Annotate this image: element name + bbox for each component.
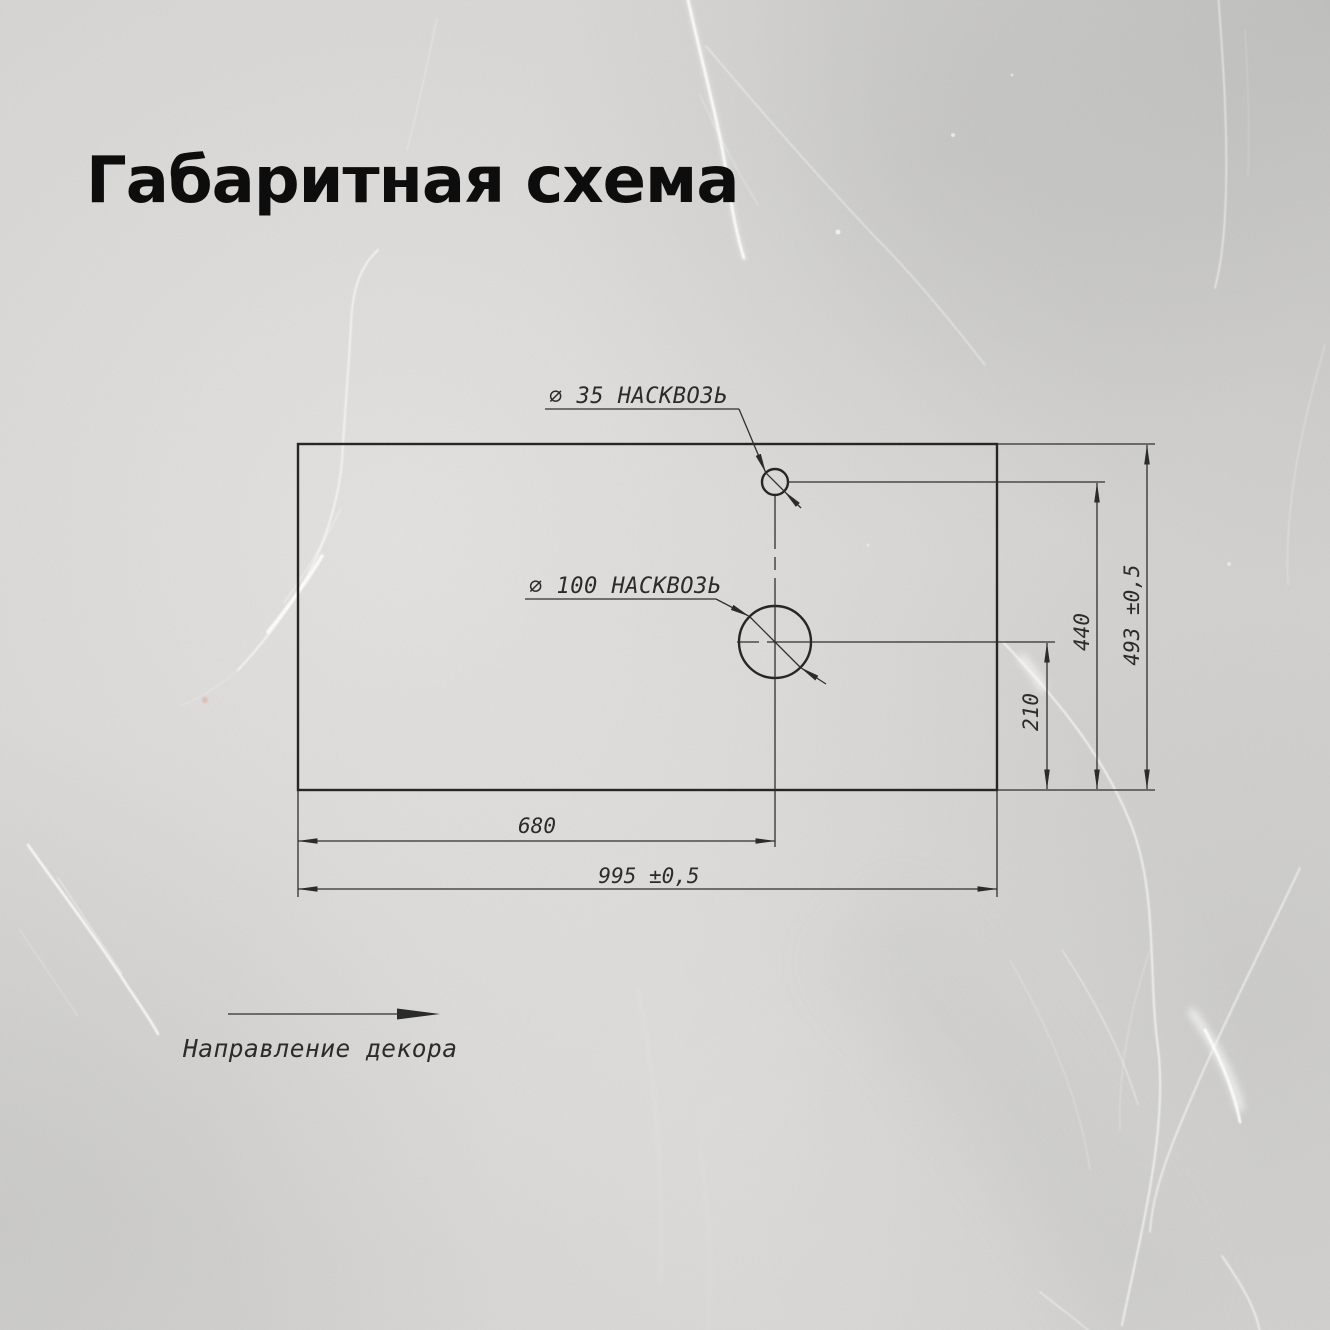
- dim-995-label: 995 ±0,5: [598, 864, 699, 888]
- dimension-lines: [298, 445, 1147, 889]
- extension-lines: [298, 444, 1155, 897]
- hole-100-label: ⌀ 100 НАСКВОЗЬ: [529, 574, 721, 599]
- panel-outline: [298, 444, 997, 790]
- hole-35-callout: ⌀ 35 НАСКВОЗЬ: [545, 384, 801, 508]
- dim-440-label: 440: [1070, 613, 1094, 651]
- dim-493-label: 493 ±0,5: [1120, 564, 1144, 665]
- dimension-labels: 680 995 ±0,5 210 440 493 ±0,5: [518, 564, 1144, 888]
- hole-100-callout: ⌀ 100 НАСКВОЗЬ: [525, 574, 826, 684]
- decor-direction: Направление декора: [182, 1009, 458, 1064]
- hole-35-label: ⌀ 35 НАСКВОЗЬ: [549, 384, 728, 409]
- decor-direction-label: Направление декора: [182, 1034, 458, 1063]
- decor-arrow-icon: [397, 1009, 440, 1020]
- dim-210-label: 210: [1019, 693, 1043, 731]
- dim-680-label: 680: [518, 814, 556, 838]
- centerlines: [737, 496, 787, 847]
- poster: Габаритная схема: [0, 0, 1330, 1330]
- dimension-drawing: ⌀ 35 НАСКВОЗЬ ⌀ 100 НАСКВОЗЬ 680 995 ±0,…: [0, 0, 1330, 1330]
